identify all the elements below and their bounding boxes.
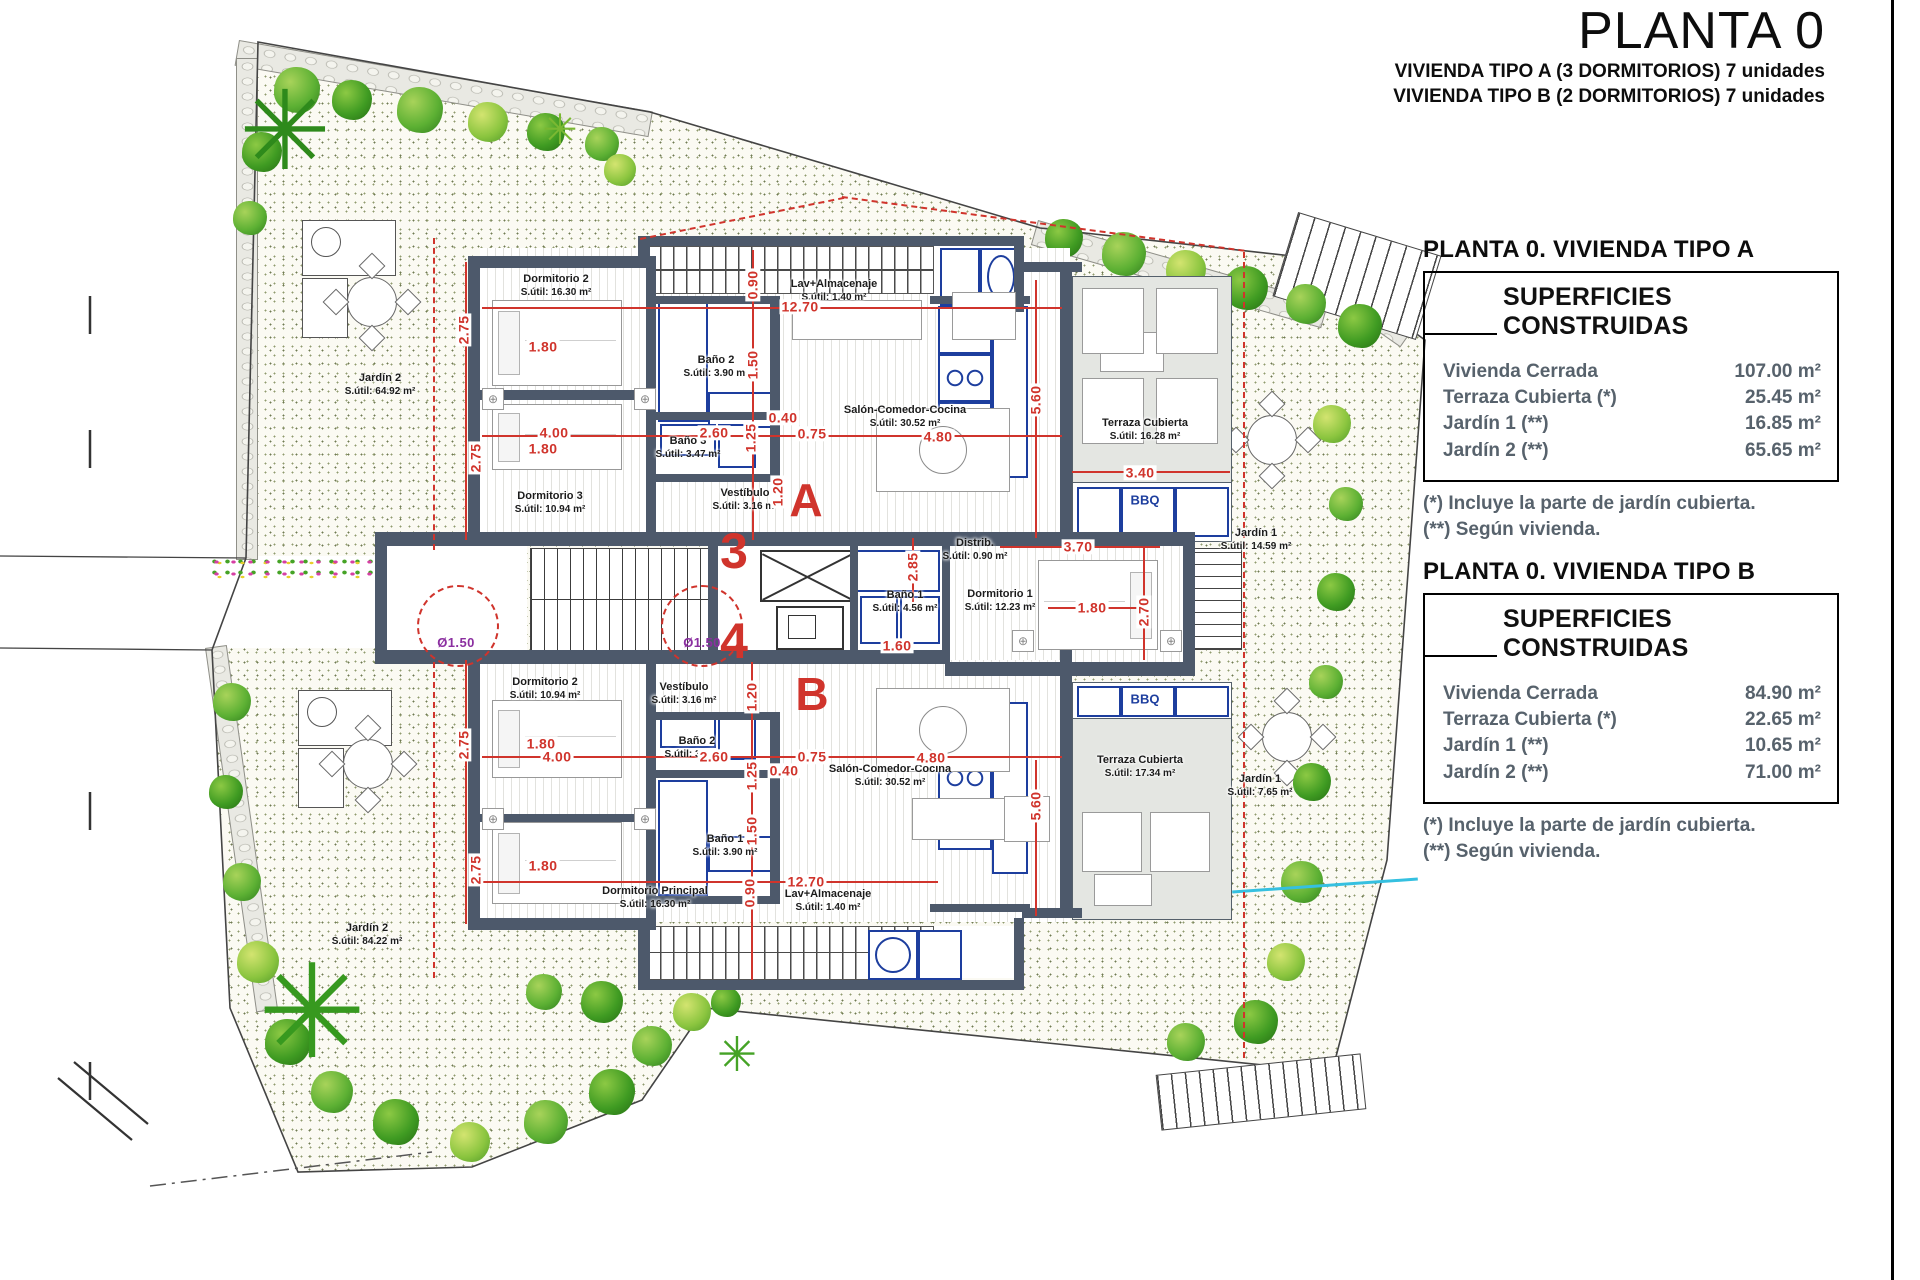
stair-marker-3: 3 — [720, 522, 748, 580]
dimension-line — [465, 262, 467, 540]
bush — [1281, 861, 1323, 903]
room-label-dorm2-a: Dormitorio 2S.útil: 16.30 m² — [521, 273, 592, 299]
furniture-item — [952, 292, 1016, 340]
room-label-jardin1-b: Jardín 1S.útil: 7.65 m² — [1227, 773, 1292, 799]
room-label-dormP-b: Dormitorio PrincipalS.útil: 16.30 m² — [602, 885, 708, 911]
bush — [213, 683, 251, 721]
wall — [1060, 270, 1072, 542]
bush — [1329, 487, 1363, 521]
dimension-label: 0.90 — [745, 269, 760, 302]
bush — [1313, 405, 1351, 443]
dimension-label: 1.50 — [745, 349, 760, 382]
nightstand: ⊕ — [1012, 630, 1034, 652]
panel-a-table: SUPERFICIES CONSTRUIDAS Vivienda Cerrada… — [1423, 271, 1839, 482]
bush — [223, 863, 261, 901]
room-label-salon-a: Salón-Comedor-CocinaS.útil: 30.52 m² — [844, 404, 966, 430]
sheet-background: BBQ BBQ A 3 4 B ⊕ — [0, 0, 1920, 1280]
palm-tree-icon: ✳ — [258, 947, 367, 1077]
dimension-label: 2.75 — [468, 442, 483, 475]
room-label-vest-b: VestíbuloS.útil: 3.16 m² — [651, 681, 716, 707]
nightstand: ⊕ — [1160, 630, 1182, 652]
bush — [1267, 943, 1305, 981]
wall — [1022, 262, 1082, 272]
wall — [656, 474, 772, 482]
bbq-label-a: BBQ — [1131, 493, 1160, 508]
room-label-jardin2-b: Jardín 2S.útil: 84.22 m² — [332, 922, 403, 948]
room-label-distrib: Distrib.S.útil: 0.90 m² — [942, 537, 1007, 563]
dimension-label: 1.80 — [525, 736, 558, 751]
diameter-label: Ø1.50 — [681, 636, 722, 650]
table-row: Terraza Cubierta (*)22.65 m² — [1425, 707, 1821, 733]
bush — [373, 1099, 419, 1145]
wall — [468, 918, 650, 930]
dimension-line — [1035, 760, 1037, 916]
nightstand: ⊕ — [482, 808, 504, 830]
sheet-subtitle-a: VIVIENDA TIPO A (3 DORMITORIOS) 7 unidad… — [1393, 59, 1825, 84]
dimension-label: 0.40 — [767, 410, 800, 425]
palm-tree-icon: ✳ — [717, 1032, 757, 1080]
dimension-line — [482, 881, 938, 883]
table-row: Vivienda Cerrada84.90 m² — [1425, 681, 1821, 707]
wall — [1014, 918, 1024, 990]
table-row: Jardín 1 (**)10.65 m² — [1425, 733, 1821, 759]
panel-vivienda-b: PLANTA 0. VIVIENDA TIPO B SUPERFICIES CO… — [1423, 558, 1839, 864]
palm-tree-icon: ✳ — [239, 77, 331, 187]
garden-table — [343, 739, 393, 789]
furniture-item — [1150, 812, 1210, 872]
wall — [850, 546, 858, 652]
sheet-subtitle-b: VIVIENDA TIPO B (2 DORMITORIOS) 7 unidad… — [1393, 84, 1825, 109]
room-label-dorm1-a: Dormitorio 1S.útil: 12.23 m² — [965, 588, 1036, 614]
dimension-label: 2.60 — [698, 749, 731, 764]
wall — [638, 980, 1024, 990]
dimension-label: 4.00 — [538, 425, 571, 440]
panel-vivienda-a: PLANTA 0. VIVIENDA TIPO A SUPERFICIES CO… — [1423, 236, 1839, 542]
table-row: Jardín 2 (**)65.65 m² — [1425, 438, 1821, 464]
panel-b-notes: (*) Incluye la parte de jardín cubierta.… — [1423, 813, 1839, 864]
bush — [1338, 304, 1382, 348]
bush — [209, 775, 243, 809]
wall — [656, 412, 772, 420]
kitchen-a-sink — [938, 354, 992, 402]
room-label-lav-b: Lav+AlmacenajeS.útil: 1.40 m² — [785, 888, 872, 914]
wall — [1183, 532, 1195, 676]
panel-a-notes: (*) Incluye la parte de jardín cubierta.… — [1423, 491, 1839, 542]
room-label-terraza-b: Terraza CubiertaS.útil: 17.34 m² — [1097, 754, 1183, 780]
room-label-dorm2-b: Dormitorio 2S.útil: 10.94 m² — [510, 676, 581, 702]
room-label-jardin1-a: Jardín 1S.útil: 14.59 m² — [1221, 527, 1292, 553]
bush — [632, 1026, 672, 1066]
garden-table — [347, 277, 397, 327]
dimension-label: 2.75 — [456, 729, 471, 762]
furniture-item — [1082, 288, 1144, 354]
bush — [589, 1069, 635, 1115]
lav-b-cabinet — [918, 930, 962, 980]
table-row: Terraza Cubierta (*)25.45 m² — [1425, 385, 1821, 411]
nightstand: ⊕ — [634, 388, 656, 410]
unit-a-marker: A — [789, 473, 822, 527]
bush — [332, 80, 372, 120]
bush — [1286, 284, 1326, 324]
bush — [604, 154, 636, 186]
dimension-label: 0.75 — [796, 426, 829, 441]
bush — [468, 102, 508, 142]
turning-circle-left — [417, 585, 499, 667]
sink-a2 — [708, 392, 772, 428]
panel-a-box-title: SUPERFICIES CONSTRUIDAS — [1497, 283, 1821, 341]
title-block: PLANTA 0 VIVIENDA TIPO A (3 DORMITORIOS)… — [1393, 4, 1825, 109]
furniture-item — [1156, 288, 1218, 354]
floor-plan-sheet: { "header": { "title": "PLANTA 0", "subt… — [0, 0, 1920, 1280]
table-row: Jardín 1 (**)16.85 m² — [1425, 411, 1821, 437]
table-row: Jardín 2 (**)71.00 m² — [1425, 760, 1821, 786]
dimension-label: 1.80 — [527, 339, 560, 354]
bush — [450, 1122, 490, 1162]
stair-marker-4: 4 — [720, 612, 748, 670]
setback-dashed-line-left-upper — [433, 238, 435, 550]
wall — [468, 256, 650, 268]
room-label-dorm3-a: Dormitorio 3S.útil: 10.94 m² — [515, 490, 586, 516]
dimension-label: 4.80 — [915, 750, 948, 765]
dimension-label: 2.75 — [468, 854, 483, 887]
bush — [711, 987, 741, 1017]
dimension-label: 3.70 — [1062, 539, 1095, 554]
garden-kitchen-lower — [298, 690, 392, 746]
table-row: Vivienda Cerrada107.00 m² — [1425, 359, 1821, 385]
elevator-machine — [776, 606, 844, 650]
dimension-label: 4.80 — [922, 429, 955, 444]
dimension-label: 0.75 — [796, 749, 829, 764]
dimension-label: 0.90 — [742, 877, 757, 910]
room-label-terraza-a: Terraza CubiertaS.útil: 16.28 m² — [1102, 417, 1188, 443]
dimension-label: 1.50 — [744, 815, 759, 848]
bush — [1317, 573, 1355, 611]
bush — [1102, 232, 1146, 276]
dimension-label: 2.60 — [698, 425, 731, 440]
room-label-jardin2-a: Jardín 2S.útil: 64.92 m² — [345, 372, 416, 398]
dimension-label: 2.85 — [905, 551, 920, 584]
furniture-item — [1094, 874, 1152, 906]
wall — [930, 904, 1030, 912]
diameter-label: Ø1.50 — [435, 636, 476, 650]
nightstand: ⊕ — [634, 808, 656, 830]
dimension-label: 5.60 — [1028, 384, 1043, 417]
palm-tree-icon: ✳ — [542, 109, 577, 151]
dimension-label: 1.80 — [527, 441, 560, 456]
dimension-label: 1.25 — [744, 760, 759, 793]
wall — [638, 236, 936, 246]
bush — [524, 1100, 568, 1144]
wall — [770, 712, 780, 904]
garden-table — [1247, 415, 1297, 465]
bush — [233, 201, 267, 235]
bush — [1234, 1000, 1278, 1044]
bbq-label-b: BBQ — [1131, 692, 1160, 707]
dimension-label: 1.20 — [770, 476, 785, 509]
dimension-label: 1.80 — [527, 858, 560, 873]
dimension-label: 1.80 — [1076, 600, 1109, 615]
garden-table — [1262, 712, 1312, 762]
nightstand: ⊕ — [482, 388, 504, 410]
wall — [934, 236, 1024, 246]
dimension-label: 12.70 — [779, 299, 820, 314]
wall — [770, 296, 780, 482]
setback-dashed-line-left-lower — [433, 662, 435, 978]
panel-b-table: SUPERFICIES CONSTRUIDAS Vivienda Cerrada… — [1423, 593, 1839, 804]
dimension-label: 3.40 — [1124, 465, 1157, 480]
setback-dashed-line-right — [1243, 252, 1245, 1058]
wall — [1022, 908, 1082, 918]
panel-a-header: PLANTA 0. VIVIENDA TIPO A — [1423, 236, 1839, 264]
dimension-label: 1.60 — [881, 638, 914, 653]
shower-core — [856, 550, 940, 592]
washer-b — [868, 930, 918, 980]
bush — [673, 993, 711, 1031]
wall — [468, 650, 480, 930]
dimension-label: 12.70 — [785, 874, 826, 889]
bush — [1293, 763, 1331, 801]
bush — [1167, 1023, 1205, 1061]
room-label-vest-a: VestíbuloS.útil: 3.16 m² — [712, 487, 777, 513]
bush — [526, 974, 562, 1010]
bush — [1309, 665, 1343, 699]
panel-b-header: PLANTA 0. VIVIENDA TIPO B — [1423, 558, 1839, 586]
dimension-line — [482, 307, 1062, 309]
dimension-label: 5.60 — [1028, 790, 1043, 823]
dimension-label: 1.20 — [744, 681, 759, 714]
room-label-bano2-a: Baño 2S.útil: 3.90 m² — [683, 354, 748, 380]
unit-b-marker: B — [795, 667, 828, 721]
elevator-shaft — [760, 550, 854, 602]
wall — [375, 532, 387, 664]
sheet-title: PLANTA 0 — [1393, 4, 1825, 59]
dimension-label: 2.70 — [1136, 596, 1151, 629]
dimension-label: 1.25 — [743, 422, 758, 455]
wall — [1060, 650, 1072, 918]
garden-steps-mid — [1192, 548, 1242, 650]
bush — [397, 87, 443, 133]
dimension-label: 0.40 — [768, 763, 801, 778]
room-label-bano1-core: Baño 1S.útil: 4.56 m² — [872, 589, 937, 615]
panel-b-box-title: SUPERFICIES CONSTRUIDAS — [1497, 605, 1821, 663]
bush — [581, 981, 623, 1023]
room-label-salon-b: Salón-Comedor-CocinaS.útil: 30.52 m² — [829, 763, 951, 789]
furniture-item — [1082, 812, 1142, 872]
dimension-label: 2.75 — [456, 314, 471, 347]
